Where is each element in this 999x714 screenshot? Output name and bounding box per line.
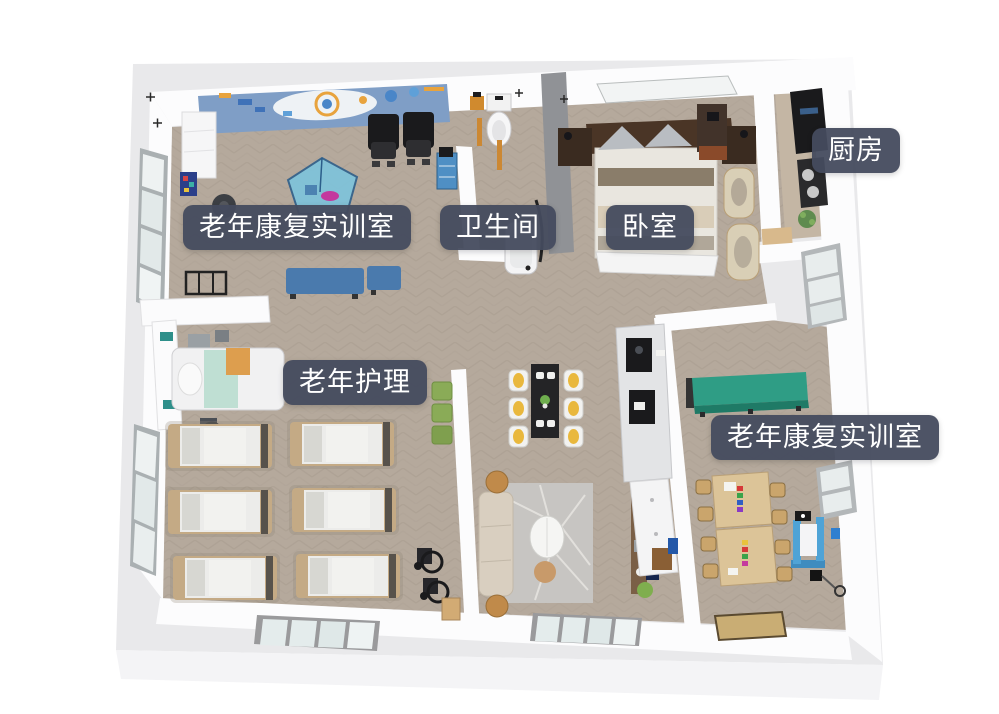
window-left-upper[interactable] xyxy=(136,148,168,312)
supply-cabinet[interactable] xyxy=(182,112,216,178)
room-label-kitchen[interactable]: 厨房 xyxy=(812,128,900,173)
window-bottom-center[interactable] xyxy=(530,613,642,646)
hospital-bed[interactable] xyxy=(172,348,284,410)
wall-bathroom-bottom xyxy=(458,248,506,262)
supply-cart-blue[interactable] xyxy=(437,147,457,189)
care-bed-3[interactable] xyxy=(165,487,275,537)
activity-chair-8[interactable] xyxy=(777,567,792,581)
activity-chair-5[interactable] xyxy=(770,483,785,497)
activity-chair-6[interactable] xyxy=(772,510,787,524)
activity-chair-2[interactable] xyxy=(698,507,713,521)
dining-chair-1[interactable] xyxy=(509,370,528,391)
pendant-lamp[interactable] xyxy=(530,516,564,558)
nightstand-right[interactable] xyxy=(722,126,756,164)
activity-chair-4[interactable] xyxy=(703,564,718,578)
toilet[interactable] xyxy=(487,94,511,146)
wall-poster[interactable] xyxy=(180,172,197,196)
activity-table-2[interactable] xyxy=(716,526,777,586)
kitchen-stool[interactable] xyxy=(761,227,792,245)
dining-table[interactable] xyxy=(531,364,559,438)
dining-chair-3[interactable] xyxy=(509,426,528,447)
window-right-lower[interactable] xyxy=(816,460,857,520)
activity-table-1[interactable] xyxy=(712,472,772,528)
kitchen-plant[interactable] xyxy=(798,210,816,228)
care-bed-6[interactable] xyxy=(293,551,403,601)
activity-chair-7[interactable] xyxy=(775,540,790,554)
wooden-step-box[interactable] xyxy=(442,598,460,620)
dresser[interactable] xyxy=(697,104,727,160)
dining-chair-6[interactable] xyxy=(564,426,583,447)
dining-chair-2[interactable] xyxy=(509,398,528,419)
floorplan-viewport[interactable]: 老年康复实训室 卫生间 卧室 厨房 老年护理 老年康复实训室 xyxy=(0,0,999,714)
floorplan-scene xyxy=(0,0,999,714)
room-label-bathroom[interactable]: 卫生间 xyxy=(440,205,556,250)
equipment-shelf[interactable] xyxy=(616,324,672,482)
room-label-rehab-2[interactable]: 老年康复实训室 xyxy=(711,415,939,460)
care-bed-2[interactable] xyxy=(287,419,397,469)
window-left-lower[interactable] xyxy=(130,424,160,576)
care-bed-5[interactable] xyxy=(170,553,280,603)
activity-chair-1[interactable] xyxy=(696,480,711,494)
room-label-bedroom[interactable]: 卧室 xyxy=(606,205,694,250)
care-bed-1[interactable] xyxy=(165,421,275,471)
window-right-upper[interactable] xyxy=(801,243,847,329)
activity-chair-3[interactable] xyxy=(701,537,716,551)
care-bed-4[interactable] xyxy=(289,485,399,535)
room-label-rehab-1[interactable]: 老年康复实训室 xyxy=(183,205,411,250)
nightstand-left[interactable] xyxy=(558,128,592,166)
doormat[interactable] xyxy=(715,612,786,640)
dining-chair-4[interactable] xyxy=(564,370,583,391)
armchair-tan[interactable] xyxy=(534,561,556,583)
room-label-nursing[interactable]: 老年护理 xyxy=(283,360,427,405)
dining-chair-5[interactable] xyxy=(564,398,583,419)
sofa[interactable] xyxy=(479,471,513,617)
green-stools[interactable] xyxy=(432,382,452,444)
